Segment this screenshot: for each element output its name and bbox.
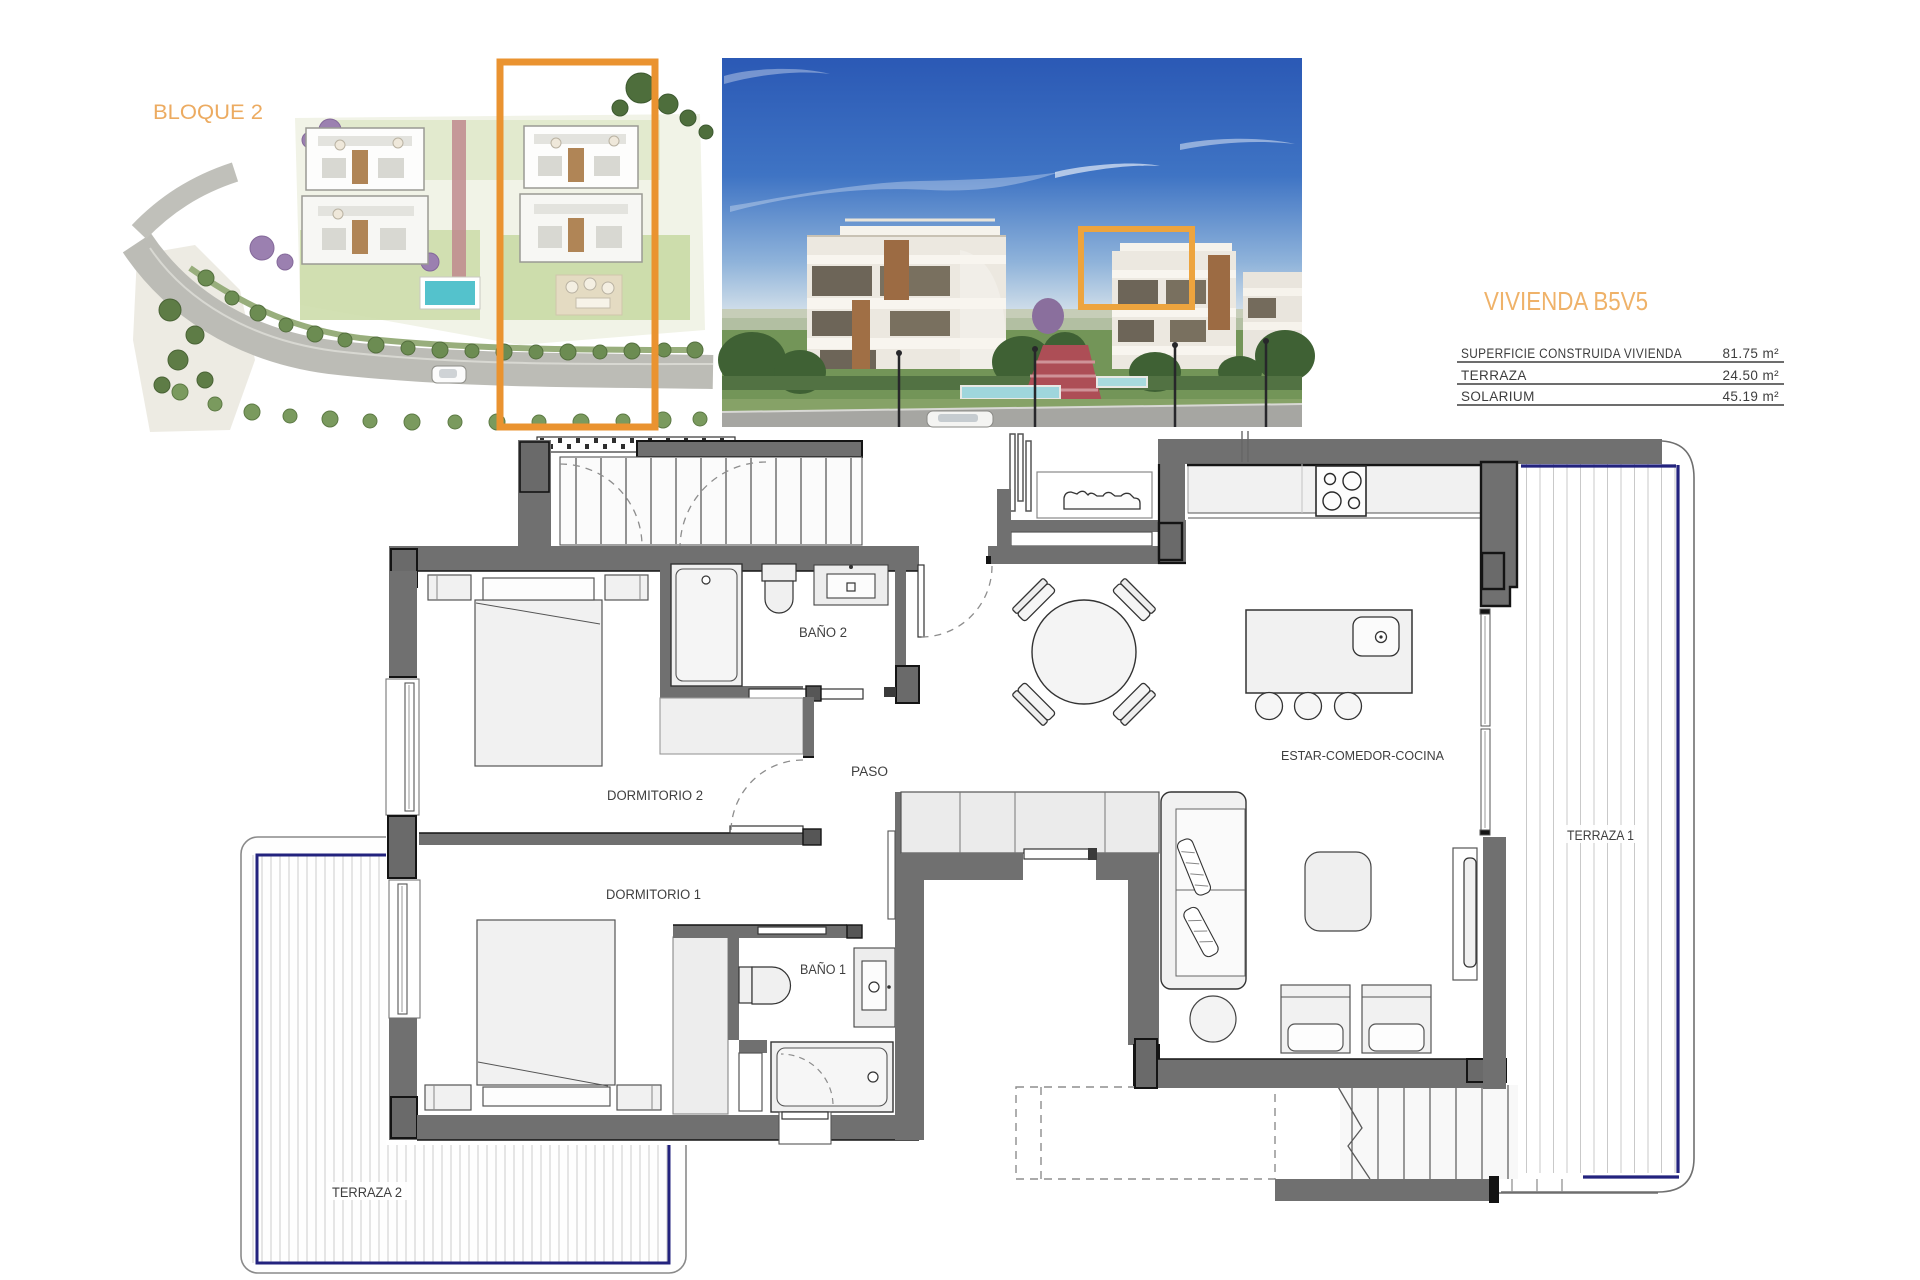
svg-text:BAÑO 1: BAÑO 1 [800,962,846,977]
svg-text:ESTAR-COMEDOR-COCINA: ESTAR-COMEDOR-COCINA [1281,748,1444,763]
svg-text:DORMITORIO 1: DORMITORIO 1 [606,887,701,902]
svg-text:BLOQUE 2: BLOQUE 2 [153,101,263,124]
svg-text:SUPERFICIE CONSTRUIDA VIVIENDA: SUPERFICIE CONSTRUIDA VIVIENDA [1461,346,1682,361]
svg-text:45.19 m²: 45.19 m² [1723,389,1780,404]
svg-text:TERRAZA: TERRAZA [1461,368,1527,383]
svg-text:81.75 m²: 81.75 m² [1723,346,1780,361]
svg-text:BAÑO 2: BAÑO 2 [799,625,847,640]
svg-text:TERRAZA 2: TERRAZA 2 [332,1185,402,1200]
svg-text:TERRAZA 1: TERRAZA 1 [1567,828,1634,843]
svg-text:DORMITORIO 2: DORMITORIO 2 [607,788,703,803]
svg-text:SOLARIUM: SOLARIUM [1461,389,1535,404]
svg-text:24.50 m²: 24.50 m² [1723,368,1780,383]
svg-text:PASO: PASO [851,764,888,779]
svg-text:VIVIENDA B5V5: VIVIENDA B5V5 [1484,286,1648,316]
